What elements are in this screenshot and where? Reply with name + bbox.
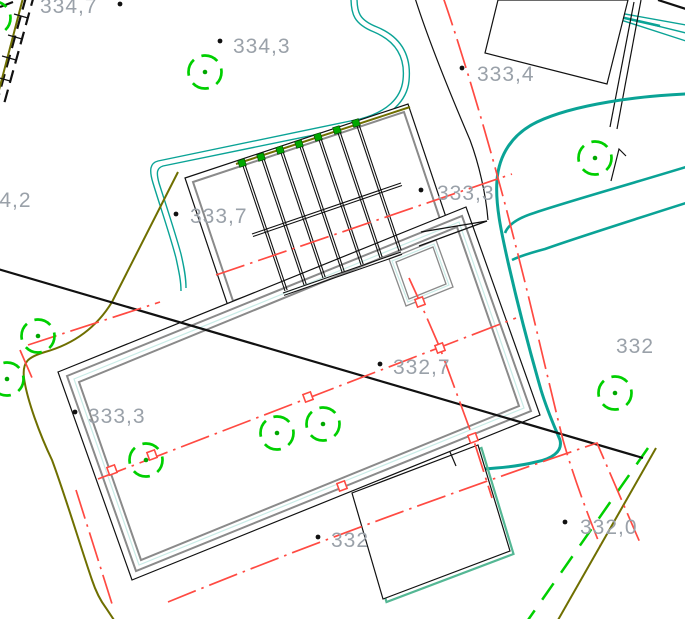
- elevation-label: 332,0: [580, 516, 638, 539]
- tree-symbol: [0, 363, 24, 396]
- cad-site-plan-canvas[interactable]: 334,7 334,3 333,4 334,2 333,7 333,3 332,…: [0, 0, 685, 619]
- tree-symbol: [599, 377, 632, 410]
- bench-mark: [611, 149, 626, 181]
- tree-symbol: [22, 320, 55, 353]
- tree-symbol: [189, 56, 222, 89]
- elevation-label: 332: [616, 335, 654, 358]
- fence-boundary: [0, 0, 33, 104]
- elevation-label: 332: [331, 529, 369, 552]
- tree-symbol: [579, 142, 612, 175]
- elevation-label: 333,3: [437, 182, 495, 205]
- elevation-label: 333,3: [88, 405, 146, 428]
- elevation-label: 332,7: [393, 356, 451, 379]
- elevation-label: 333,7: [190, 205, 248, 228]
- elevation-label: 334,7: [40, 0, 98, 18]
- topright-edge-mark: [658, 0, 685, 9]
- dark-red-point-dot: [599, 343, 604, 348]
- elevation-label: 333,4: [477, 63, 535, 86]
- elevation-label: 334,3: [233, 35, 291, 58]
- elevation-label: 334,2: [0, 189, 32, 212]
